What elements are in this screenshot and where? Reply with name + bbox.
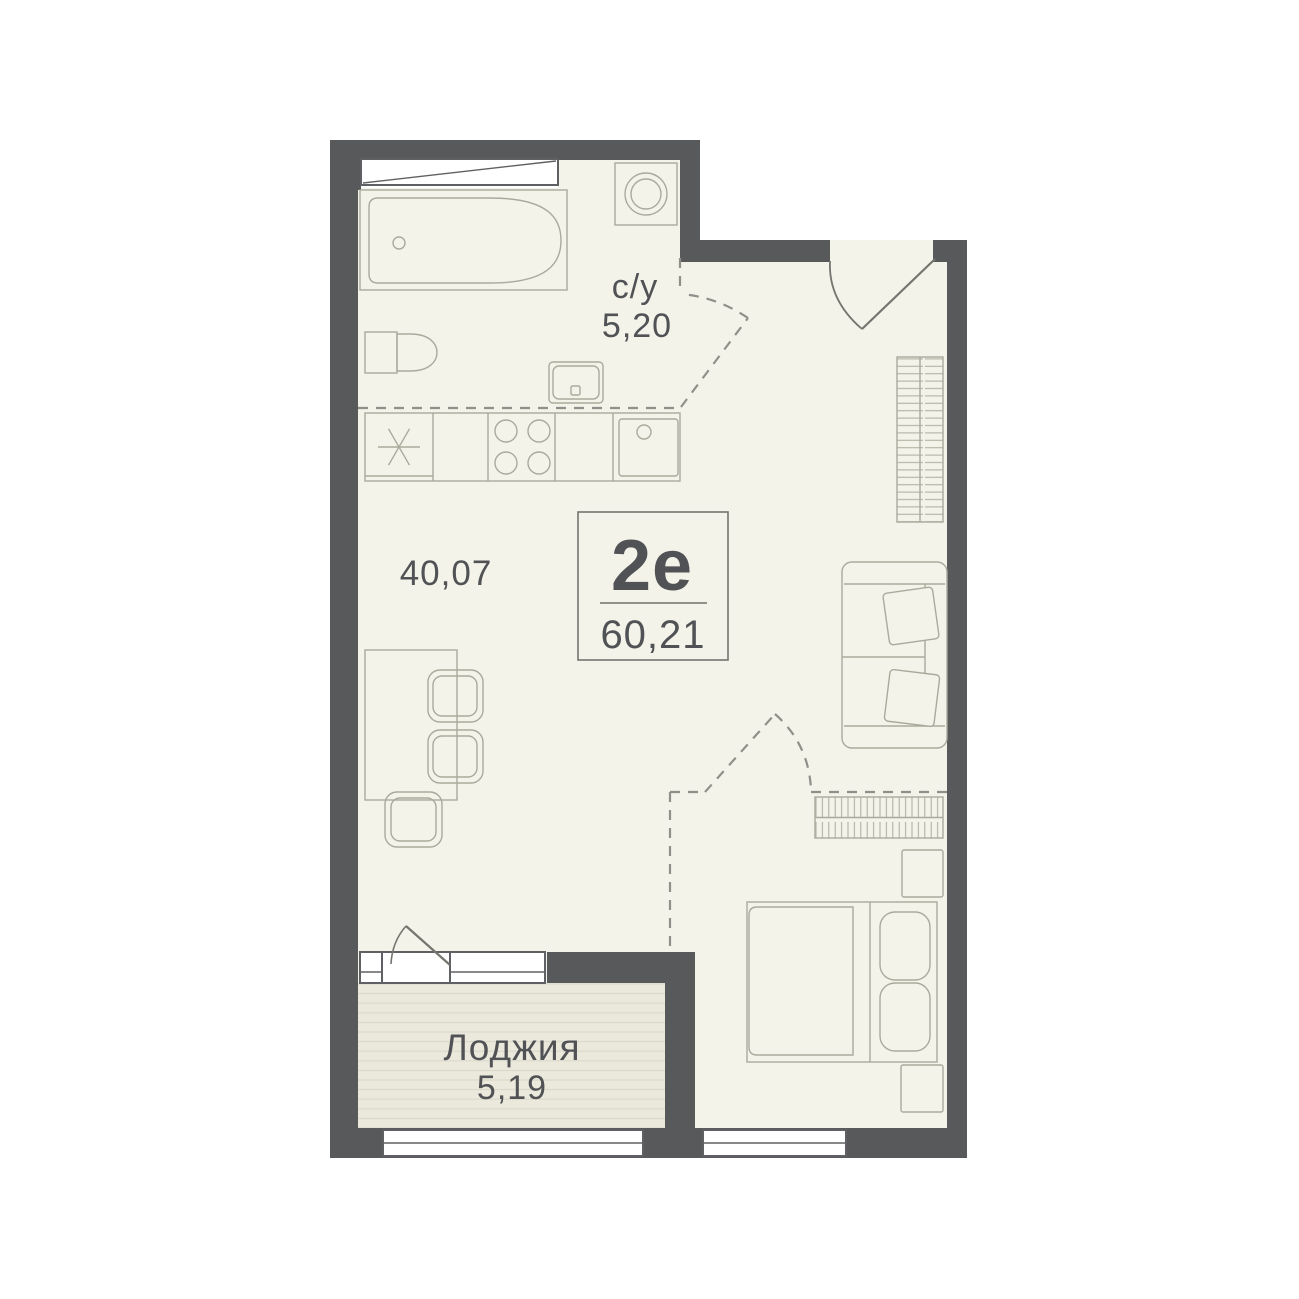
wall-right <box>947 260 967 1158</box>
balcony-window-left <box>360 952 382 983</box>
loggia-area-label: 5,19 <box>477 1069 547 1107</box>
balcony-window-right <box>450 952 545 983</box>
floor-plan-page: с/у 5,20 40,07 Лоджия 5,19 2е 60,21 <box>0 0 1299 1299</box>
floor-plan: с/у 5,20 40,07 Лоджия 5,19 2е 60,21 <box>0 0 1299 1299</box>
wall-left <box>330 140 358 1158</box>
sofa-pillow <box>883 587 940 645</box>
loggia-label: Лоджия <box>443 1027 580 1068</box>
sofa-pillow <box>884 669 940 727</box>
bathroom-label: с/у <box>612 268 658 306</box>
bathroom-window <box>361 159 558 185</box>
bed-pillow <box>880 983 930 1051</box>
unit-type-label: 2е <box>611 526 693 606</box>
wall-loggia-right <box>665 983 695 1128</box>
bed-pillow <box>880 912 930 980</box>
wall-entry-left <box>700 240 830 262</box>
hall-wardrobe <box>897 357 943 522</box>
wall-step <box>680 140 700 262</box>
wall-top <box>330 140 700 160</box>
wall-loggia-top <box>547 952 695 983</box>
bedroom-wardrobe <box>815 797 943 838</box>
balcony-door-unit <box>360 952 545 983</box>
loggia-window <box>383 1130 643 1156</box>
wall-top-left-jamb <box>330 158 361 190</box>
floor-entry-opening <box>830 240 933 264</box>
bathroom-area-label: 5,20 <box>602 307 672 345</box>
wall-entry-corner <box>933 240 967 262</box>
bedroom-window <box>703 1130 846 1156</box>
living-area-label: 40,07 <box>400 554 493 593</box>
unit-total-area-label: 60,21 <box>600 613 705 657</box>
